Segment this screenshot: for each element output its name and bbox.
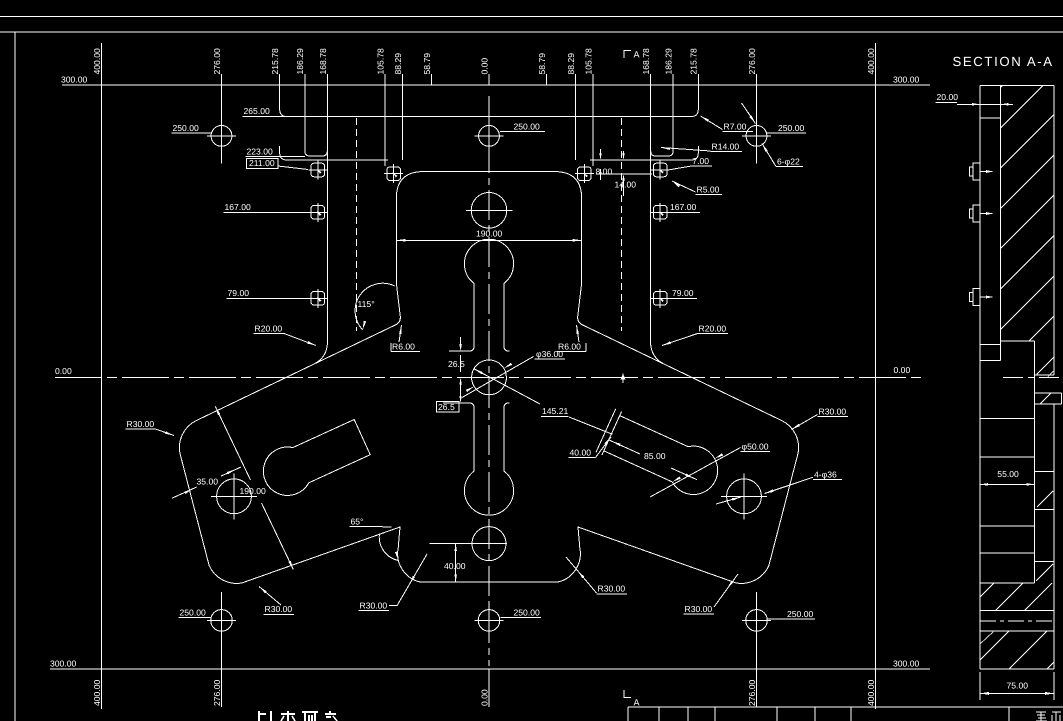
svg-text:SECTION A-A: SECTION A-A	[953, 54, 1054, 69]
svg-text:40.00: 40.00	[444, 561, 466, 571]
svg-text:R30.00: R30.00	[360, 601, 388, 611]
svg-text:55.00: 55.00	[997, 469, 1019, 479]
svg-text:R5.00: R5.00	[697, 184, 720, 194]
svg-text:40.00: 40.00	[570, 447, 592, 457]
svg-text:20.00: 20.00	[937, 92, 959, 102]
svg-text:0.00: 0.00	[55, 366, 72, 376]
svg-text:265.00: 265.00	[244, 106, 271, 116]
svg-text:167.00: 167.00	[225, 202, 252, 212]
svg-text:145.21: 145.21	[542, 406, 569, 416]
svg-text:R30.00: R30.00	[819, 407, 847, 417]
svg-text:105.78: 105.78	[583, 48, 593, 75]
svg-text:215.78: 215.78	[689, 48, 699, 75]
svg-text:168.78: 168.78	[641, 48, 651, 75]
svg-text:186.29: 186.29	[664, 48, 674, 75]
svg-text:276.00: 276.00	[747, 48, 757, 75]
svg-text:300.00: 300.00	[61, 74, 88, 84]
svg-text:R20.00: R20.00	[255, 323, 283, 333]
svg-text:75.00: 75.00	[1007, 681, 1029, 691]
svg-text:58.79: 58.79	[422, 53, 432, 75]
svg-text:400.00: 400.00	[866, 48, 876, 75]
svg-text:250.00: 250.00	[173, 123, 200, 133]
svg-text:250.00: 250.00	[514, 122, 541, 132]
svg-text:R7.00: R7.00	[724, 121, 747, 131]
svg-text:58.79: 58.79	[537, 53, 547, 75]
svg-text:R6.00: R6.00	[392, 341, 415, 351]
svg-text:A: A	[634, 698, 640, 708]
svg-text:167.00: 167.00	[670, 202, 697, 212]
svg-text:0.00: 0.00	[479, 689, 489, 706]
svg-text:250.00: 250.00	[514, 608, 541, 618]
svg-text:190.00: 190.00	[240, 486, 267, 496]
svg-text:88.29: 88.29	[566, 53, 576, 75]
svg-text:276.00: 276.00	[212, 48, 222, 75]
svg-text:168.78: 168.78	[318, 48, 328, 75]
svg-text:85.00: 85.00	[644, 451, 666, 461]
svg-text:R30.00: R30.00	[685, 604, 713, 614]
svg-text:14.00: 14.00	[615, 180, 637, 190]
svg-text:211.00: 211.00	[249, 158, 275, 168]
svg-text:6-φ22: 6-φ22	[777, 156, 800, 166]
svg-text:0.00: 0.00	[479, 58, 489, 75]
svg-text:186.29: 186.29	[295, 48, 305, 75]
svg-text:R6.00: R6.00	[558, 341, 581, 351]
svg-text:7.00: 7.00	[692, 156, 709, 166]
svg-text:4-φ36: 4-φ36	[814, 469, 837, 479]
svg-text:400.00: 400.00	[92, 679, 102, 706]
svg-text:215.78: 215.78	[270, 48, 280, 75]
svg-text:105.78: 105.78	[376, 48, 386, 75]
svg-text:223.00: 223.00	[247, 146, 274, 156]
svg-text:8.00: 8.00	[596, 167, 613, 177]
svg-text:R30.00: R30.00	[127, 419, 155, 429]
svg-text:400.00: 400.00	[866, 679, 876, 706]
svg-text:400.00: 400.00	[92, 48, 102, 75]
svg-text:0.00: 0.00	[894, 365, 911, 375]
svg-text:79.00: 79.00	[228, 288, 250, 298]
svg-text:79.00: 79.00	[672, 288, 694, 298]
svg-text:R20.00: R20.00	[699, 323, 727, 333]
svg-text:65°: 65°	[351, 516, 364, 526]
svg-text:R30.00: R30.00	[265, 604, 293, 614]
svg-text:300.00: 300.00	[893, 74, 920, 84]
svg-text:35.00: 35.00	[197, 476, 219, 486]
svg-text:300.00: 300.00	[50, 658, 77, 668]
svg-text:276.00: 276.00	[747, 679, 757, 706]
svg-text:R14.00: R14.00	[712, 141, 740, 151]
svg-text:190.00: 190.00	[476, 228, 503, 238]
svg-text:276.00: 276.00	[212, 679, 222, 706]
svg-text:26.5: 26.5	[438, 402, 455, 412]
svg-text:φ50.00: φ50.00	[742, 441, 769, 451]
svg-text:250.00: 250.00	[778, 123, 805, 133]
svg-text:R30.00: R30.00	[598, 584, 626, 594]
svg-text:26.5: 26.5	[448, 359, 465, 369]
svg-text:88.29: 88.29	[393, 53, 403, 75]
svg-text:115°: 115°	[358, 299, 375, 309]
svg-text:250.00: 250.00	[787, 609, 814, 619]
svg-text:300.00: 300.00	[893, 658, 920, 668]
svg-text:A: A	[634, 50, 640, 60]
svg-text:250.00: 250.00	[180, 608, 207, 618]
